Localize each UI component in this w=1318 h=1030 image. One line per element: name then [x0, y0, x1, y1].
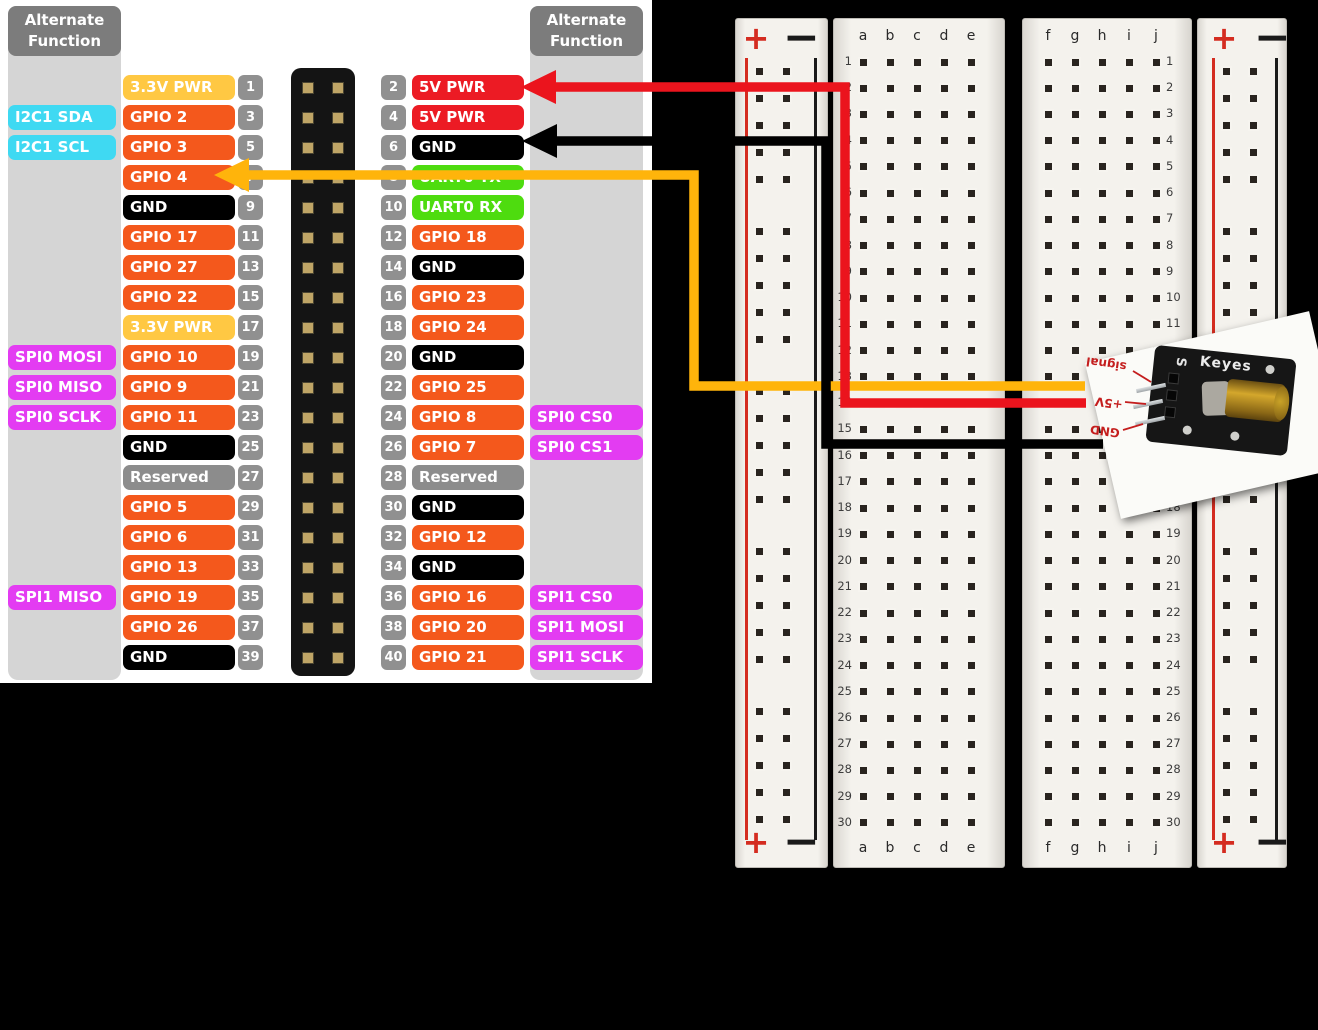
breadboard-hole [860, 268, 867, 275]
breadboard-hole [860, 85, 867, 92]
breadboard-hole [1072, 111, 1079, 118]
breadboard-hole [1072, 636, 1079, 643]
pin-label-uart0-rx: UART0 RX [412, 195, 524, 220]
breadboard-hole [1072, 741, 1079, 748]
breadboard-hole [1099, 347, 1106, 354]
breadboard-hole [914, 347, 921, 354]
row-number-right: 27 [1166, 736, 1196, 750]
breadboard-hole [941, 426, 948, 433]
column-letter-j: j [1146, 28, 1166, 44]
breadboard-hole [887, 688, 894, 695]
row-number-right: 29 [1166, 789, 1196, 803]
row-number-right: 10 [1166, 290, 1196, 304]
breadboard-hole [968, 295, 975, 302]
breadboard-hole [914, 531, 921, 538]
header-pin [332, 112, 344, 124]
breadboard-hole [1126, 715, 1133, 722]
pin-number-27: 27 [238, 465, 263, 490]
header-pin [332, 652, 344, 664]
breadboard-hole [1153, 111, 1160, 118]
rail-hole [756, 309, 763, 316]
header-pin [302, 412, 314, 424]
breadboard-hole [860, 793, 867, 800]
breadboard-hole [887, 452, 894, 459]
row-number-left: 9 [822, 264, 852, 278]
breadboard-hole [1126, 137, 1133, 144]
pin-label-gpio-6: GPIO 6 [123, 525, 235, 550]
pin-label-gpio-3: GPIO 3 [123, 135, 235, 160]
breadboard-hole [1072, 85, 1079, 92]
rail-minus-marker: − [783, 16, 819, 60]
rail-hole [783, 762, 790, 769]
row-number-left: 27 [822, 736, 852, 750]
pin-number-10: 10 [381, 195, 406, 220]
alt-pill-spi0-sclk: SPI0 SCLK [8, 405, 116, 430]
rail-minus-marker: − [1254, 820, 1290, 864]
pin-label-gpio-4: GPIO 4 [123, 165, 235, 190]
rail-minus-marker: − [1254, 16, 1290, 60]
rail-hole [1250, 95, 1257, 102]
alt-pill-spi0-miso: SPI0 MISO [8, 375, 116, 400]
pin-number-32: 32 [381, 525, 406, 550]
breadboard-hole [914, 426, 921, 433]
rail-hole [783, 442, 790, 449]
alt-pill-i2c1-sda: I2C1 SDA [8, 105, 116, 130]
breadboard-hole [860, 216, 867, 223]
row-number-right: 19 [1166, 526, 1196, 540]
breadboard-hole [1099, 85, 1106, 92]
header-pin [302, 232, 314, 244]
pin-number-12: 12 [381, 225, 406, 250]
breadboard-hole [1153, 85, 1160, 92]
breadboard-hole [1045, 347, 1052, 354]
breadboard-hole [887, 59, 894, 66]
pin-number-29: 29 [238, 495, 263, 520]
rail-hole [783, 149, 790, 156]
breadboard-hole [1045, 557, 1052, 564]
breadboard-hole [1126, 163, 1133, 170]
row-number-right: 2 [1166, 80, 1196, 94]
breadboard-hole [1072, 505, 1079, 512]
breadboard-hole [860, 242, 867, 249]
breadboard-hole [1099, 242, 1106, 249]
rail-hole [783, 228, 790, 235]
breadboard-hole [1045, 819, 1052, 826]
breadboard-hole [1045, 216, 1052, 223]
rail-hole [756, 122, 763, 129]
breadboard-hole [1045, 321, 1052, 328]
breadboard-hole [1126, 819, 1133, 826]
rail-hole [783, 735, 790, 742]
column-letter-b: b [880, 840, 900, 856]
rail-hole [756, 68, 763, 75]
breadboard-hole [1126, 295, 1133, 302]
column-letter-g: g [1065, 28, 1085, 44]
rail-hole [756, 735, 763, 742]
pin-label-gnd: GND [123, 195, 235, 220]
breadboard-hole [1072, 190, 1079, 197]
breadboard-hole [887, 531, 894, 538]
pin-label-gpio-19: GPIO 19 [123, 585, 235, 610]
column-letter-e: e [961, 840, 981, 856]
row-number-right: 26 [1166, 710, 1196, 724]
column-letter-a: a [853, 840, 873, 856]
pcb-hole [1182, 425, 1192, 435]
row-number-right: 8 [1166, 238, 1196, 252]
alt-header-line1: Alternate [8, 10, 121, 31]
breadboard-hole [914, 478, 921, 485]
breadboard-hole [1072, 426, 1079, 433]
pin-label-gpio-18: GPIO 18 [412, 225, 524, 250]
breadboard-hole [1072, 819, 1079, 826]
breadboard-hole [941, 662, 948, 669]
breadboard-hole [1045, 662, 1052, 669]
rail-hole [783, 388, 790, 395]
breadboard-hole [887, 190, 894, 197]
alt-header-line2: Function [530, 31, 643, 52]
header-pin [302, 592, 314, 604]
pin-number-11: 11 [238, 225, 263, 250]
rail-hole [783, 548, 790, 555]
breadboard-hole [914, 268, 921, 275]
breadboard-hole [1072, 557, 1079, 564]
row-number-left: 6 [822, 185, 852, 199]
breadboard-hole [914, 610, 921, 617]
breadboard-hole [1045, 373, 1052, 380]
row-number-right: 30 [1166, 815, 1196, 829]
breadboard-hole [860, 741, 867, 748]
row-number-left: 1 [822, 54, 852, 68]
header-pin [332, 442, 344, 454]
pin-label-gnd: GND [123, 645, 235, 670]
pcb-pin-pad [1164, 406, 1176, 418]
pin-label-5v-pwr: 5V PWR [412, 105, 524, 130]
pin-label-gnd: GND [412, 555, 524, 580]
breadboard-hole [968, 268, 975, 275]
pin-number-23: 23 [238, 405, 263, 430]
pin-number-36: 36 [381, 585, 406, 610]
breadboard-hole [1153, 216, 1160, 223]
breadboard-hole [968, 531, 975, 538]
header-pin [332, 322, 344, 334]
header-pin [302, 622, 314, 634]
breadboard-hole [860, 321, 867, 328]
row-number-left: 2 [822, 80, 852, 94]
breadboard-hole [1099, 163, 1106, 170]
rail-hole [783, 575, 790, 582]
rail-hole [1250, 629, 1257, 636]
breadboard-hole [1099, 268, 1106, 275]
alt-function-header-left: Alternate Function [8, 6, 121, 56]
breadboard-hole [914, 321, 921, 328]
rail-hole [783, 68, 790, 75]
breadboard-hole [1153, 531, 1160, 538]
breadboard-hole [941, 85, 948, 92]
header-pin [302, 142, 314, 154]
column-letter-d: d [934, 840, 954, 856]
breadboard-hole [860, 715, 867, 722]
row-number-left: 29 [822, 789, 852, 803]
breadboard-hole [1099, 610, 1106, 617]
breadboard-hole [914, 295, 921, 302]
breadboard-hole [914, 137, 921, 144]
rail-hole [783, 415, 790, 422]
alt-function-header-right: Alternate Function [530, 6, 643, 56]
breadboard-hole [941, 715, 948, 722]
rail-hole [783, 309, 790, 316]
pin-number-30: 30 [381, 495, 406, 520]
rail-hole [1250, 282, 1257, 289]
breadboard-hole [887, 163, 894, 170]
header-pin [332, 292, 344, 304]
breadboard-hole [860, 163, 867, 170]
breadboard-hole [1072, 452, 1079, 459]
rail-hole [1250, 228, 1257, 235]
pin-number-15: 15 [238, 285, 263, 310]
row-number-right: 7 [1166, 211, 1196, 225]
breadboard-hole [1099, 216, 1106, 223]
header-pin [302, 442, 314, 454]
pcb-pin-pad [1168, 372, 1180, 384]
pin-label-gpio-24: GPIO 24 [412, 315, 524, 340]
breadboard-hole [887, 741, 894, 748]
breadboard-hole [860, 557, 867, 564]
rail-hole [1223, 255, 1230, 262]
alt-header-line2: Function [8, 31, 121, 52]
row-number-left: 7 [822, 211, 852, 225]
pin-number-40: 40 [381, 645, 406, 670]
pin-number-2: 2 [381, 75, 406, 100]
pin-label-gpio-13: GPIO 13 [123, 555, 235, 580]
breadboard-hole [1126, 268, 1133, 275]
breadboard-hole [1153, 741, 1160, 748]
rail-hole [783, 789, 790, 796]
rail-hole [756, 629, 763, 636]
pin-number-17: 17 [238, 315, 263, 340]
breadboard-hole [968, 819, 975, 826]
pcb-brand-label: Keyes [1199, 354, 1252, 375]
rail-hole [1223, 282, 1230, 289]
rail-hole [756, 575, 763, 582]
breadboard-hole [968, 741, 975, 748]
breadboard-hole [1072, 321, 1079, 328]
breadboard-hole [941, 531, 948, 538]
column-letter-c: c [907, 28, 927, 44]
breadboard-hole [914, 190, 921, 197]
breadboard-hole [887, 295, 894, 302]
pin-number-26: 26 [381, 435, 406, 460]
breadboard-hole [914, 583, 921, 590]
breadboard-hole [1126, 610, 1133, 617]
column-letter-e: e [961, 28, 981, 44]
breadboard-hole [968, 767, 975, 774]
rail-black-line [814, 58, 817, 840]
rail-hole [1223, 122, 1230, 129]
header-pin [332, 472, 344, 484]
breadboard-hole [860, 347, 867, 354]
rail-hole [756, 789, 763, 796]
rail-hole [783, 656, 790, 663]
breadboard-hole [1153, 268, 1160, 275]
breadboard-hole [1045, 610, 1052, 617]
breadboard-hole [1045, 583, 1052, 590]
breadboard-hole [1153, 715, 1160, 722]
breadboard-hole [1153, 59, 1160, 66]
header-pin [332, 202, 344, 214]
row-number-left: 14 [822, 395, 852, 409]
rail-hole [1250, 68, 1257, 75]
header-pin [302, 532, 314, 544]
header-pin [332, 352, 344, 364]
column-letter-f: f [1038, 840, 1058, 856]
header-pin [332, 502, 344, 514]
pin-number-9: 9 [238, 195, 263, 220]
breadboard-hole [887, 268, 894, 275]
row-number-left: 4 [822, 133, 852, 147]
row-number-left: 17 [822, 474, 852, 488]
pin-number-21: 21 [238, 375, 263, 400]
breadboard-hole [914, 163, 921, 170]
breadboard-hole [1045, 400, 1052, 407]
breadboard-hole [1126, 557, 1133, 564]
breadboard-hole [887, 505, 894, 512]
breadboard-hole [1099, 662, 1106, 669]
rail-hole [1250, 176, 1257, 183]
breadboard-hole [1045, 741, 1052, 748]
breadboard-hole [914, 373, 921, 380]
breadboard-hole [1045, 636, 1052, 643]
breadboard-hole [941, 688, 948, 695]
pin-number-13: 13 [238, 255, 263, 280]
breadboard-hole [1099, 452, 1106, 459]
breadboard-hole [1126, 531, 1133, 538]
rail-hole [756, 388, 763, 395]
breadboard-hole [968, 662, 975, 669]
breadboard-hole [860, 478, 867, 485]
pin-number-28: 28 [381, 465, 406, 490]
rail-hole [783, 282, 790, 289]
alt-pill-spi0-mosi: SPI0 MOSI [8, 345, 116, 370]
breadboard-hole [914, 741, 921, 748]
pin-number-18: 18 [381, 315, 406, 340]
breadboard-hole [1072, 295, 1079, 302]
rail-hole [756, 442, 763, 449]
breadboard-hole [968, 321, 975, 328]
rail-hole [1250, 735, 1257, 742]
rail-hole [783, 176, 790, 183]
row-number-right: 20 [1166, 553, 1196, 567]
breadboard-hole [1072, 767, 1079, 774]
breadboard-hole [1045, 531, 1052, 538]
rail-hole [1250, 255, 1257, 262]
pin-number-35: 35 [238, 585, 263, 610]
breadboard-hole [941, 163, 948, 170]
breadboard-hole [1126, 242, 1133, 249]
breadboard-hole [914, 636, 921, 643]
breadboard-hole [1045, 242, 1052, 249]
breadboard-hole [914, 505, 921, 512]
gpio-header-strip [291, 68, 355, 676]
breadboard-hole [860, 688, 867, 695]
alt-pill-spi0-cs0: SPI0 CS0 [530, 405, 643, 430]
breadboard-hole [1099, 321, 1106, 328]
column-letter-c: c [907, 840, 927, 856]
breadboard-hole [1099, 819, 1106, 826]
breadboard-hole [1072, 583, 1079, 590]
breadboard-hole [1126, 321, 1133, 328]
breadboard-hole [887, 478, 894, 485]
breadboard-hole [941, 216, 948, 223]
rail-hole [1250, 656, 1257, 663]
header-pin [302, 322, 314, 334]
rail-hole [756, 415, 763, 422]
breadboard-hole [941, 347, 948, 354]
breadboard-hole [1045, 793, 1052, 800]
rail-hole [783, 122, 790, 129]
breadboard-hole [1153, 190, 1160, 197]
header-pin [332, 232, 344, 244]
column-letter-g: g [1065, 840, 1085, 856]
breadboard-hole [941, 373, 948, 380]
column-letter-f: f [1038, 28, 1058, 44]
rail-hole [1250, 548, 1257, 555]
breadboard-hole [914, 400, 921, 407]
breadboard-hole [1072, 137, 1079, 144]
rail-hole [1223, 68, 1230, 75]
rail-hole [1223, 656, 1230, 663]
header-pin [332, 382, 344, 394]
breadboard-hole [1126, 59, 1133, 66]
rail-hole [1223, 789, 1230, 796]
breadboard-hole [968, 85, 975, 92]
pin-label-gpio-2: GPIO 2 [123, 105, 235, 130]
breadboard-hole [1099, 137, 1106, 144]
pin-label-gpio-21: GPIO 21 [412, 645, 524, 670]
breadboard-hole [860, 583, 867, 590]
breadboard-hole [1153, 321, 1160, 328]
rail-hole [1223, 735, 1230, 742]
pin-number-14: 14 [381, 255, 406, 280]
breadboard-hole [887, 111, 894, 118]
row-number-left: 3 [822, 106, 852, 120]
pin-label-5v-pwr: 5V PWR [412, 75, 524, 100]
breadboard-hole [941, 242, 948, 249]
breadboard-hole [1099, 557, 1106, 564]
pin-label-gpio-5: GPIO 5 [123, 495, 235, 520]
breadboard-hole [1153, 557, 1160, 564]
breadboard-hole [914, 59, 921, 66]
row-number-right: 23 [1166, 631, 1196, 645]
breadboard-hole [1099, 295, 1106, 302]
breadboard-hole [968, 793, 975, 800]
row-number-left: 12 [822, 343, 852, 357]
alt-pill-spi1-mosi: SPI1 MOSI [530, 615, 643, 640]
breadboard-hole [887, 793, 894, 800]
pcb-hole [1230, 431, 1240, 441]
alt-pill-spi1-miso: SPI1 MISO [8, 585, 116, 610]
breadboard-hole [887, 819, 894, 826]
breadboard-hole [1126, 111, 1133, 118]
rail-red-line [745, 58, 748, 840]
pin-label-gpio-16: GPIO 16 [412, 585, 524, 610]
rail-hole [1250, 122, 1257, 129]
breadboard-hole [941, 321, 948, 328]
pin-label-reserved: Reserved [412, 465, 524, 490]
pin-label-3.3v-pwr: 3.3V PWR [123, 315, 235, 340]
header-pin [302, 82, 314, 94]
pin-label-gpio-8: GPIO 8 [412, 405, 524, 430]
pin-label-gpio-22: GPIO 22 [123, 285, 235, 310]
